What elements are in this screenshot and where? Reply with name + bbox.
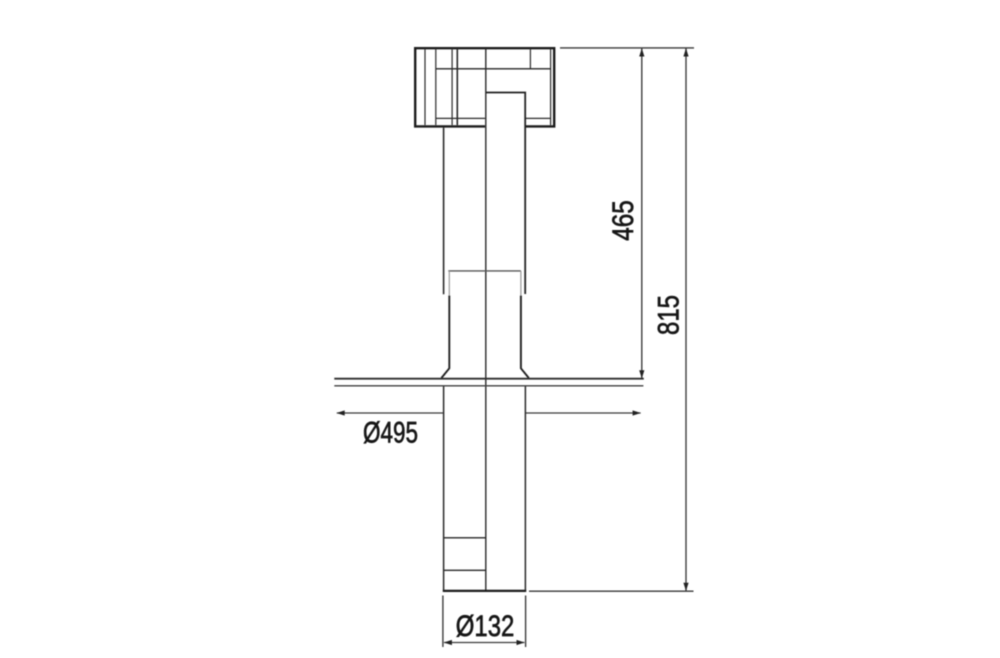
svg-text:Ø132: Ø132 bbox=[456, 610, 515, 643]
svg-text:815: 815 bbox=[652, 295, 685, 335]
svg-text:Ø495: Ø495 bbox=[363, 417, 418, 450]
svg-text:465: 465 bbox=[607, 200, 640, 241]
